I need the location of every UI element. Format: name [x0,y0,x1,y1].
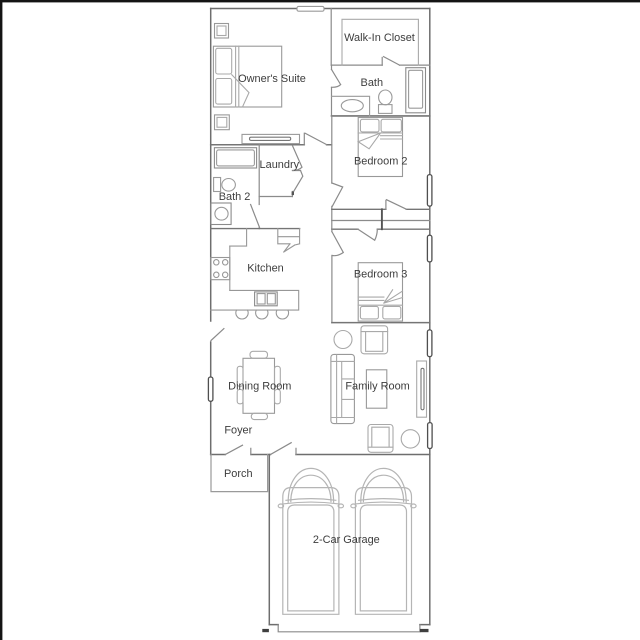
svg-text:Laundry: Laundry [260,159,300,171]
svg-text:Bath: Bath [361,77,384,89]
svg-text:Foyer: Foyer [224,424,252,436]
svg-text:2-Car Garage: 2-Car Garage [313,534,380,546]
svg-text:Owner's Suite: Owner's Suite [238,73,306,85]
svg-text:Bath 2: Bath 2 [219,191,251,203]
svg-text:Kitchen: Kitchen [247,262,283,274]
svg-text:Dining Room: Dining Room [228,380,291,392]
svg-text:Bedroom 3: Bedroom 3 [354,269,408,281]
svg-text:Bedroom 2: Bedroom 2 [354,156,408,168]
svg-text:Walk-In Closet: Walk-In Closet [344,32,415,44]
svg-text:Porch: Porch [224,468,253,480]
svg-text:Family Room: Family Room [345,381,409,393]
